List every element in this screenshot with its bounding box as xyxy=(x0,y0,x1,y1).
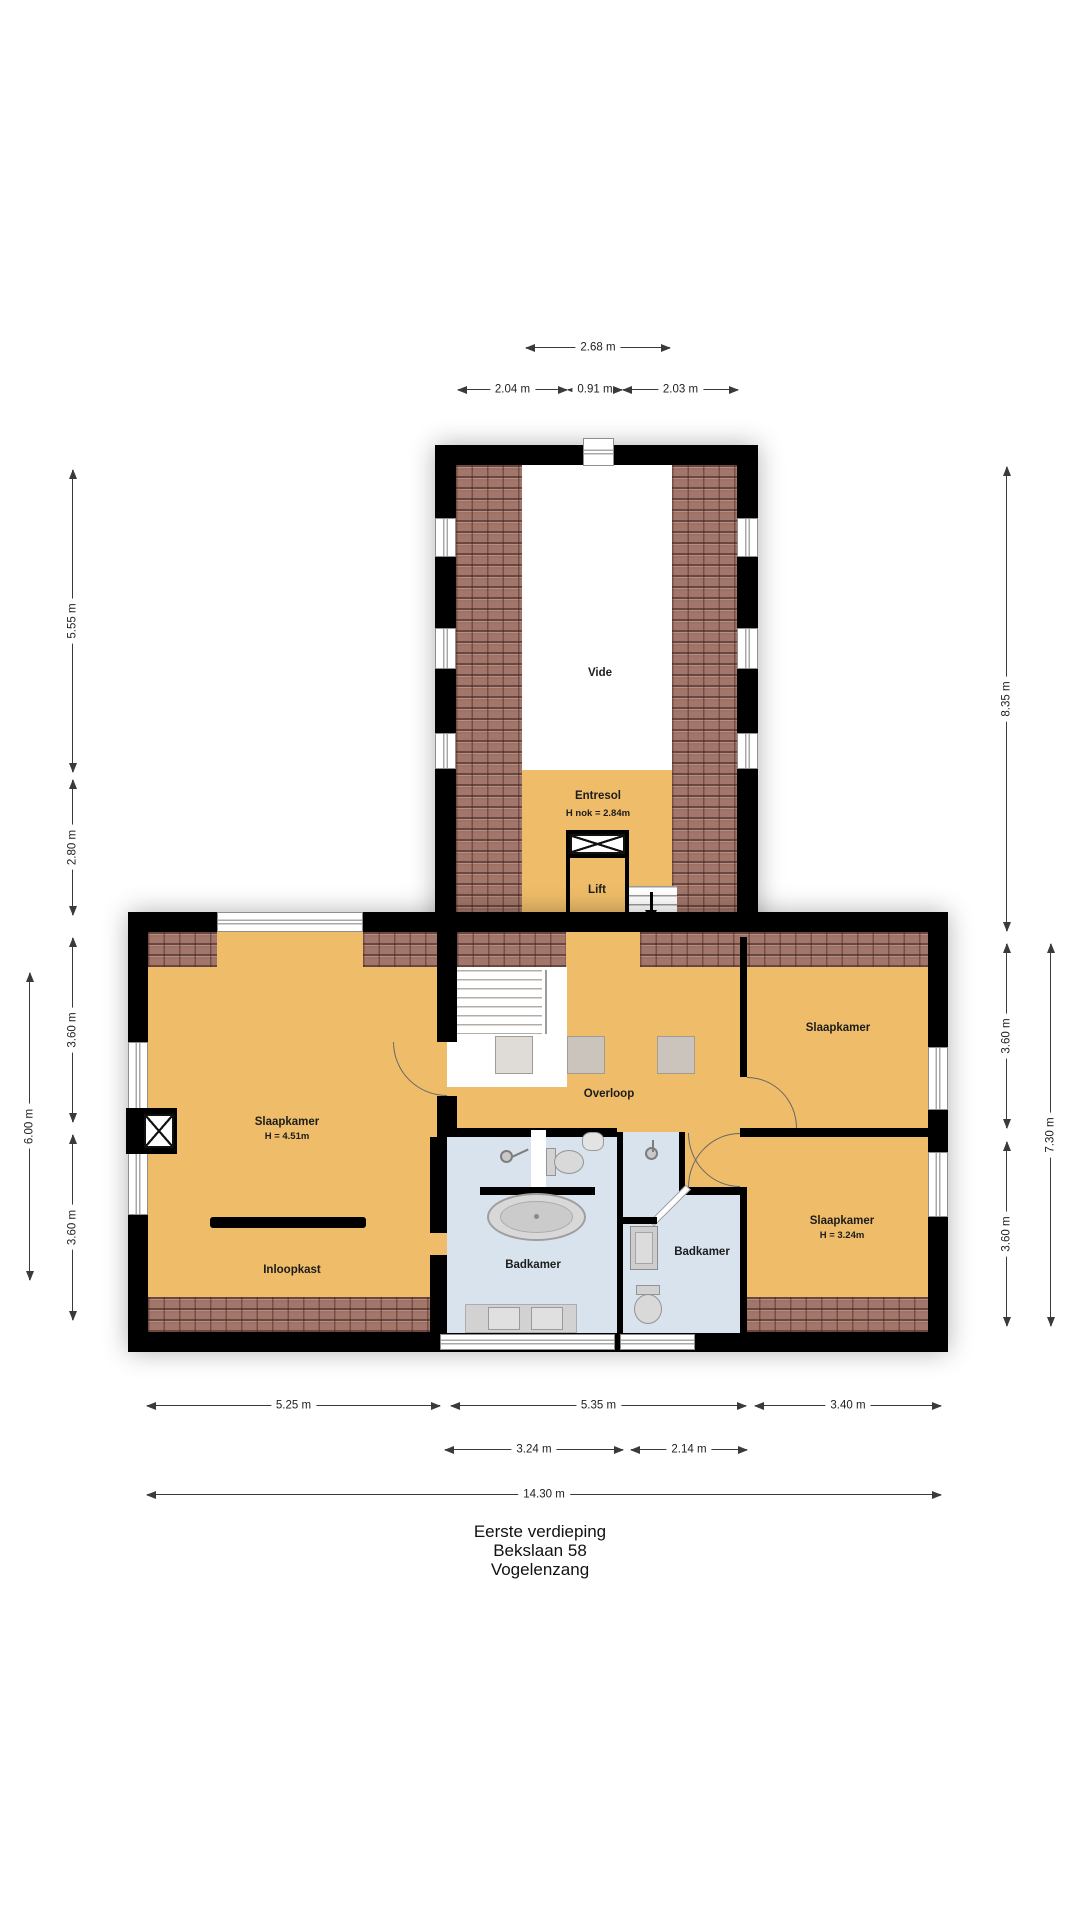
skylight-2 xyxy=(657,1036,695,1074)
inloopkast-label: Inloopkast xyxy=(242,1264,342,1276)
main-top-window xyxy=(217,912,363,932)
tower-roof-tiles-left xyxy=(456,465,522,932)
city-name: Vogelenzang xyxy=(340,1560,740,1579)
stair-platform xyxy=(495,1036,533,1074)
right-rooms-wall-b xyxy=(740,1128,747,1137)
tower-roof-tiles-right xyxy=(672,465,737,932)
shower-icon xyxy=(500,1150,513,1163)
floor-name: Eerste verdieping xyxy=(340,1522,740,1541)
dim-bottom-right: 3.40 m xyxy=(755,1405,941,1406)
nook-left-wall xyxy=(679,1132,685,1187)
entresol-height-label: H nok = 2.84m xyxy=(548,808,648,819)
slaapkamer-right-bottom-height-label: H = 3.24m xyxy=(792,1230,892,1241)
dim-left-upper: 3.60 m xyxy=(72,938,73,1122)
bathroom1-left-wall-a xyxy=(430,1137,447,1233)
dim-total-top: 2.68 m xyxy=(526,347,670,348)
vide-floor xyxy=(522,465,672,770)
tower-window-right-3 xyxy=(737,733,758,769)
roof-band-bottom-left xyxy=(148,1297,437,1332)
dim-right-lower: 3.60 m xyxy=(1006,1142,1007,1326)
dim-tower-right: 8.35 m xyxy=(1006,467,1007,931)
stairwell-rail xyxy=(545,970,547,1034)
dim-total-bottom: 14.30 m xyxy=(147,1494,941,1495)
tower-window-left-1 xyxy=(435,518,456,557)
vide-label: Vide xyxy=(560,667,640,679)
dim-entresol-height: 2.80 m xyxy=(72,780,73,915)
wall-left-bedroom-upper xyxy=(437,932,457,1042)
bottom-window-1 xyxy=(440,1334,615,1350)
bathroom2-stub-wall xyxy=(623,1217,657,1224)
bathtub-drain xyxy=(534,1214,539,1219)
chimney-shaft-icon xyxy=(144,1114,174,1148)
lift-shaft-icon xyxy=(570,834,625,854)
tower-window-left-2 xyxy=(435,628,456,669)
dim-vide-height: 5.55 m xyxy=(72,470,73,772)
stairwell-treads xyxy=(452,970,542,1034)
tower-window-left-3 xyxy=(435,733,456,769)
bathroom2-sink-basin xyxy=(635,1232,653,1264)
lift-label: Lift xyxy=(567,884,627,896)
slaapkamer-right-top-label: Slaapkamer xyxy=(788,1022,888,1034)
street-address: Bekslaan 58 xyxy=(340,1541,740,1560)
left-wall-window-2 xyxy=(128,1152,148,1215)
entresol-label: Entresol xyxy=(548,790,648,802)
right-wall-window-1 xyxy=(928,1047,948,1110)
closet-rod xyxy=(210,1217,366,1228)
overloop-label: Overloop xyxy=(559,1088,659,1100)
badkamer-small-label: Badkamer xyxy=(652,1246,752,1258)
vanity-sink-1 xyxy=(488,1307,520,1330)
toilet2-bowl xyxy=(634,1294,662,1324)
tower-window-right-2 xyxy=(737,628,758,669)
shower2-arm xyxy=(652,1140,654,1152)
slaapkamer-left-label: Slaapkamer xyxy=(237,1116,337,1128)
dim-bath-right: 2.14 m xyxy=(631,1449,747,1450)
badkamer-main-label: Badkamer xyxy=(483,1259,583,1271)
right-rooms-wall-a xyxy=(740,937,747,1077)
dim-bottom-mid: 5.35 m xyxy=(451,1405,746,1406)
dim-bottom-left: 5.25 m xyxy=(147,1405,440,1406)
bathroom1-pillar xyxy=(531,1130,546,1189)
dim-left-total: 6.00 m xyxy=(29,973,30,1280)
bottom-window-2 xyxy=(620,1334,695,1350)
dim-top-left: 2.04 m xyxy=(458,389,567,390)
skylight-1 xyxy=(567,1036,605,1074)
toilet-bowl xyxy=(554,1150,584,1174)
right-bedrooms-divider xyxy=(747,1128,928,1137)
dim-right-total: 7.30 m xyxy=(1050,944,1051,1326)
tower-window-right-1 xyxy=(737,518,758,557)
dim-bath-left: 3.24 m xyxy=(445,1449,623,1450)
slaapkamer-right-bottom-label: Slaapkamer xyxy=(792,1215,892,1227)
right-rooms-wall-c xyxy=(740,1188,747,1332)
floor-plan-canvas: Vide Entresol H nok = 2.84m Lift Slaapka… xyxy=(0,0,1080,1920)
roof-band-top-c xyxy=(457,932,566,967)
roof-band-top-b xyxy=(363,932,437,967)
dim-top-right: 2.03 m xyxy=(623,389,738,390)
tower-window-top xyxy=(583,438,614,466)
left-wall-window-1 xyxy=(128,1042,148,1110)
dim-left-lower: 3.60 m xyxy=(72,1135,73,1320)
dim-top-mid: 0.91 m xyxy=(568,389,622,390)
dim-right-upper: 3.60 m xyxy=(1006,944,1007,1128)
wall-left-bedroom-lower xyxy=(437,1096,457,1132)
vanity-sink-2 xyxy=(531,1307,563,1330)
roof-band-top-d xyxy=(640,932,928,967)
stairs-down-arrow-stem xyxy=(650,892,653,912)
plan-title: Eerste verdieping Bekslaan 58 Vogelenzan… xyxy=(340,1522,740,1579)
bathroom1-left-wall-b xyxy=(430,1255,447,1332)
right-wall-window-2 xyxy=(928,1152,948,1217)
slaapkamer-left-height-label: H = 4.51m xyxy=(237,1131,337,1142)
hand-basin-icon xyxy=(582,1132,604,1151)
roof-band-top-a xyxy=(148,932,217,967)
